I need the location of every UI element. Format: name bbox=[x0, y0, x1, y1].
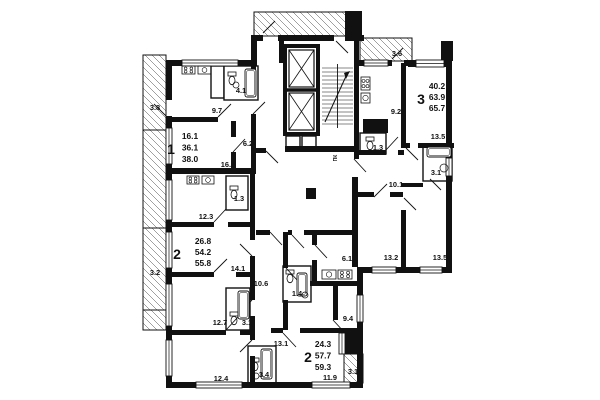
apartment-stat: 24.3 bbox=[315, 339, 332, 349]
wall bbox=[310, 281, 360, 286]
balcony-hatch-line bbox=[293, 12, 317, 36]
apartment-stat: 63.9 bbox=[429, 92, 446, 102]
floor-plan-page: 3.89.74.16.216.13.69.213.51.33.110.11.31… bbox=[0, 0, 600, 400]
room-area-label: 3.1 bbox=[431, 168, 441, 177]
wall bbox=[283, 232, 288, 268]
balcony-hatch-line bbox=[143, 200, 166, 223]
room-area-label: 13.2 bbox=[384, 253, 398, 262]
stove-burner bbox=[340, 275, 343, 278]
apartment-number: 3 bbox=[417, 91, 425, 107]
wall bbox=[256, 230, 270, 235]
room-area-label: 12.3 bbox=[199, 212, 213, 221]
room-area-label: 1.4 bbox=[292, 289, 303, 298]
balcony-hatch-line bbox=[254, 29, 261, 36]
balcony-hatch-line bbox=[314, 12, 338, 36]
door-leaf bbox=[315, 245, 327, 258]
room-area-label: 10.1 bbox=[389, 180, 403, 189]
door-leaf bbox=[270, 232, 282, 245]
wall bbox=[166, 222, 214, 227]
balcony-hatch-line bbox=[143, 303, 150, 310]
balcony-hatch-line bbox=[328, 12, 346, 30]
stove-burner bbox=[362, 79, 365, 82]
room-area-label: 11.9 bbox=[323, 373, 337, 382]
sink-icon bbox=[322, 270, 336, 279]
balcony-hatch-line bbox=[258, 12, 282, 36]
wall bbox=[300, 328, 357, 333]
wall bbox=[251, 35, 263, 41]
apartment-stat: 36.1 bbox=[182, 143, 199, 153]
room-area-label: 13.1 bbox=[274, 339, 288, 348]
balcony-outline bbox=[143, 130, 166, 228]
sink-basin bbox=[202, 68, 207, 73]
room-area-label: 1.3 bbox=[234, 194, 244, 203]
apartment-stat: 38.0 bbox=[182, 154, 199, 164]
wall bbox=[408, 60, 416, 67]
door-leaf bbox=[292, 235, 304, 248]
door-leaf bbox=[240, 244, 252, 256]
room-area-label: 16.1 bbox=[221, 160, 235, 169]
door-leaf bbox=[214, 209, 226, 222]
stove-icon bbox=[187, 176, 199, 184]
wall bbox=[401, 210, 406, 267]
balcony-hatch-line bbox=[143, 130, 166, 153]
stove-burner bbox=[366, 79, 369, 82]
apartment-stat: 26.8 bbox=[195, 236, 212, 246]
balcony-hatch-line bbox=[143, 214, 157, 228]
balcony-hatch-line bbox=[143, 282, 166, 305]
apartment-stat: 40.2 bbox=[429, 81, 446, 91]
balcony-hatch-line bbox=[286, 12, 310, 36]
sink-basin bbox=[363, 95, 368, 100]
apartment-stat: 54.2 bbox=[195, 247, 212, 257]
stove-burner bbox=[184, 70, 187, 73]
wall bbox=[358, 192, 374, 197]
fire-cabinet-label: ПК bbox=[333, 154, 339, 162]
room-area-label: 12.7 bbox=[213, 318, 227, 327]
wall bbox=[256, 148, 266, 153]
wall bbox=[350, 382, 363, 388]
stove-burner bbox=[366, 85, 369, 88]
stove-icon bbox=[182, 66, 195, 74]
room-area-label: 3.6 bbox=[392, 49, 402, 58]
balcony-hatch-line bbox=[143, 158, 166, 181]
balcony-hatch-line bbox=[143, 172, 166, 195]
wall bbox=[396, 267, 420, 273]
stove-burner bbox=[190, 67, 193, 70]
room-area-label: 3.8 bbox=[150, 103, 160, 112]
stove-burner bbox=[190, 70, 193, 73]
door-leaf bbox=[406, 148, 418, 160]
stove-burner bbox=[189, 177, 192, 180]
balcony-hatch-line bbox=[150, 130, 166, 146]
wall bbox=[283, 300, 288, 330]
sink-icon bbox=[202, 176, 214, 184]
balcony-hatch-line bbox=[158, 310, 166, 318]
room-area-label: 1.3 bbox=[373, 143, 383, 152]
stove-burner bbox=[189, 180, 192, 183]
balcony-hatch-line bbox=[143, 144, 166, 167]
wall bbox=[250, 232, 255, 240]
stove-icon bbox=[338, 270, 352, 279]
balcony-hatch-line bbox=[152, 228, 166, 242]
room-box bbox=[211, 66, 224, 98]
sink-basin bbox=[206, 178, 211, 183]
balcony-hatch-line bbox=[407, 38, 412, 43]
room-area-label: 9.2 bbox=[391, 107, 401, 116]
apartment-stat: 65.7 bbox=[429, 103, 446, 113]
balcony-hatch-line bbox=[321, 12, 345, 36]
balcony-hatch-line bbox=[307, 12, 331, 36]
wall bbox=[304, 230, 356, 235]
room-area-label: 9.7 bbox=[212, 106, 222, 115]
wall bbox=[166, 117, 218, 122]
room-area-label: 3.2 bbox=[150, 268, 160, 277]
stove-burner bbox=[362, 85, 365, 88]
sink-icon bbox=[198, 66, 211, 74]
balcony-hatch-line bbox=[159, 228, 166, 235]
room-area-label: 4.1 bbox=[236, 86, 246, 95]
wall bbox=[390, 192, 403, 197]
wall bbox=[401, 63, 406, 148]
door-leaf bbox=[266, 151, 278, 163]
balcony-hatch-line bbox=[143, 123, 150, 130]
balcony-outline bbox=[143, 310, 166, 330]
room-area-label: 9.4 bbox=[343, 314, 354, 323]
room-area-label: 3.1 bbox=[348, 367, 358, 376]
stove-burner bbox=[347, 275, 350, 278]
door-leaf bbox=[253, 102, 265, 114]
balcony-hatch-line bbox=[143, 316, 157, 330]
stair-arrow bbox=[325, 74, 347, 122]
wall bbox=[345, 11, 362, 41]
balcony-hatch-line bbox=[143, 247, 166, 270]
wall bbox=[166, 382, 196, 388]
wall bbox=[238, 60, 252, 66]
balcony-hatch-line bbox=[143, 323, 150, 330]
balcony-hatch-line bbox=[360, 47, 374, 61]
wall bbox=[446, 45, 452, 158]
wall bbox=[231, 121, 236, 137]
column bbox=[306, 188, 316, 199]
wall bbox=[398, 150, 404, 155]
balcony-hatch-line bbox=[143, 165, 166, 188]
apartment-stat: 16.1 bbox=[182, 131, 199, 141]
door-leaf bbox=[354, 159, 366, 172]
balcony-hatch-line bbox=[143, 275, 166, 298]
balcony-hatch-line bbox=[143, 296, 157, 310]
wall bbox=[228, 222, 252, 227]
door-leaf bbox=[386, 137, 398, 150]
stove-icon bbox=[361, 77, 370, 90]
room-area-label: 14.1 bbox=[231, 264, 245, 273]
balcony-hatch-line bbox=[143, 233, 166, 256]
room-area-label: 12.4 bbox=[214, 374, 229, 383]
wall bbox=[345, 333, 362, 354]
balcony-hatch-line bbox=[143, 221, 150, 228]
balcony-hatch-line bbox=[159, 55, 166, 62]
stove-burner bbox=[194, 180, 197, 183]
wall bbox=[166, 60, 182, 66]
balcony-hatch-line bbox=[143, 81, 166, 104]
wall bbox=[442, 267, 452, 273]
wall bbox=[242, 382, 312, 388]
door-leaf bbox=[404, 198, 416, 210]
apartment-number: 1 bbox=[167, 141, 175, 157]
balcony-hatch-line bbox=[143, 193, 166, 216]
balcony-hatch-line bbox=[365, 38, 388, 61]
room-area-label: 10.6 bbox=[254, 279, 268, 288]
wall bbox=[312, 235, 317, 245]
apartment-number: 2 bbox=[304, 349, 312, 365]
wall bbox=[354, 41, 359, 159]
stove-burner bbox=[184, 67, 187, 70]
wall bbox=[166, 330, 226, 335]
wall bbox=[285, 146, 355, 152]
room-area-label: 6.1 bbox=[342, 254, 352, 263]
balcony-hatch-line bbox=[143, 151, 166, 174]
balcony-hatch-line bbox=[143, 67, 166, 90]
wall bbox=[388, 60, 392, 66]
balcony-hatch-line bbox=[254, 22, 268, 36]
room-area-label: 3.4 bbox=[259, 370, 270, 379]
door-leaf bbox=[374, 184, 387, 197]
wall bbox=[357, 322, 363, 388]
balcony-hatch-line bbox=[143, 116, 157, 130]
sink-basin bbox=[326, 272, 331, 277]
apartment-number: 2 bbox=[173, 246, 181, 262]
stove-burner bbox=[340, 271, 343, 274]
room-area-label: 3.1 bbox=[242, 318, 252, 327]
wall bbox=[406, 143, 410, 148]
door-leaf bbox=[336, 41, 348, 53]
balcony-hatch-line bbox=[143, 60, 166, 83]
balcony-hatch-line bbox=[152, 55, 166, 69]
apartment-stat: 57.7 bbox=[315, 351, 332, 361]
wall bbox=[166, 272, 214, 277]
wall bbox=[271, 328, 283, 333]
room-area-label: 6.2 bbox=[243, 139, 253, 148]
balcony-hatch-line bbox=[300, 12, 324, 36]
sink-icon bbox=[361, 93, 370, 103]
balcony-hatch-line bbox=[143, 186, 166, 209]
balcony-hatch-line bbox=[335, 12, 346, 23]
stove-burner bbox=[347, 271, 350, 274]
wall bbox=[278, 35, 334, 41]
balcony-hatch-line bbox=[143, 240, 166, 263]
wall bbox=[312, 260, 317, 284]
floor-plan-drawing: 3.89.74.16.216.13.69.213.51.33.110.11.31… bbox=[0, 0, 600, 400]
stove-burner bbox=[194, 177, 197, 180]
column bbox=[363, 119, 388, 133]
wall bbox=[288, 230, 292, 235]
wall bbox=[333, 286, 338, 320]
wall bbox=[401, 183, 423, 187]
room-area-label: 13.5 bbox=[433, 253, 447, 262]
balcony-hatch-line bbox=[157, 130, 166, 139]
door-leaf bbox=[214, 259, 227, 272]
balcony-hatch-line bbox=[265, 12, 289, 36]
apartment-stat: 59.3 bbox=[315, 362, 332, 372]
balcony-hatch-line bbox=[143, 179, 166, 202]
balcony-hatch-line bbox=[151, 310, 166, 325]
wall bbox=[166, 168, 256, 174]
room-area-label: 13.5 bbox=[431, 132, 445, 141]
apartment-stat: 55.8 bbox=[195, 258, 212, 268]
balcony-outline bbox=[254, 12, 346, 36]
balcony-hatch-line bbox=[279, 12, 303, 36]
balcony-hatch-line bbox=[143, 74, 166, 97]
wall bbox=[250, 168, 255, 232]
balcony-hatch-line bbox=[272, 12, 296, 36]
wall bbox=[352, 177, 358, 267]
wall bbox=[250, 256, 255, 300]
balcony-hatch-line bbox=[143, 137, 166, 160]
